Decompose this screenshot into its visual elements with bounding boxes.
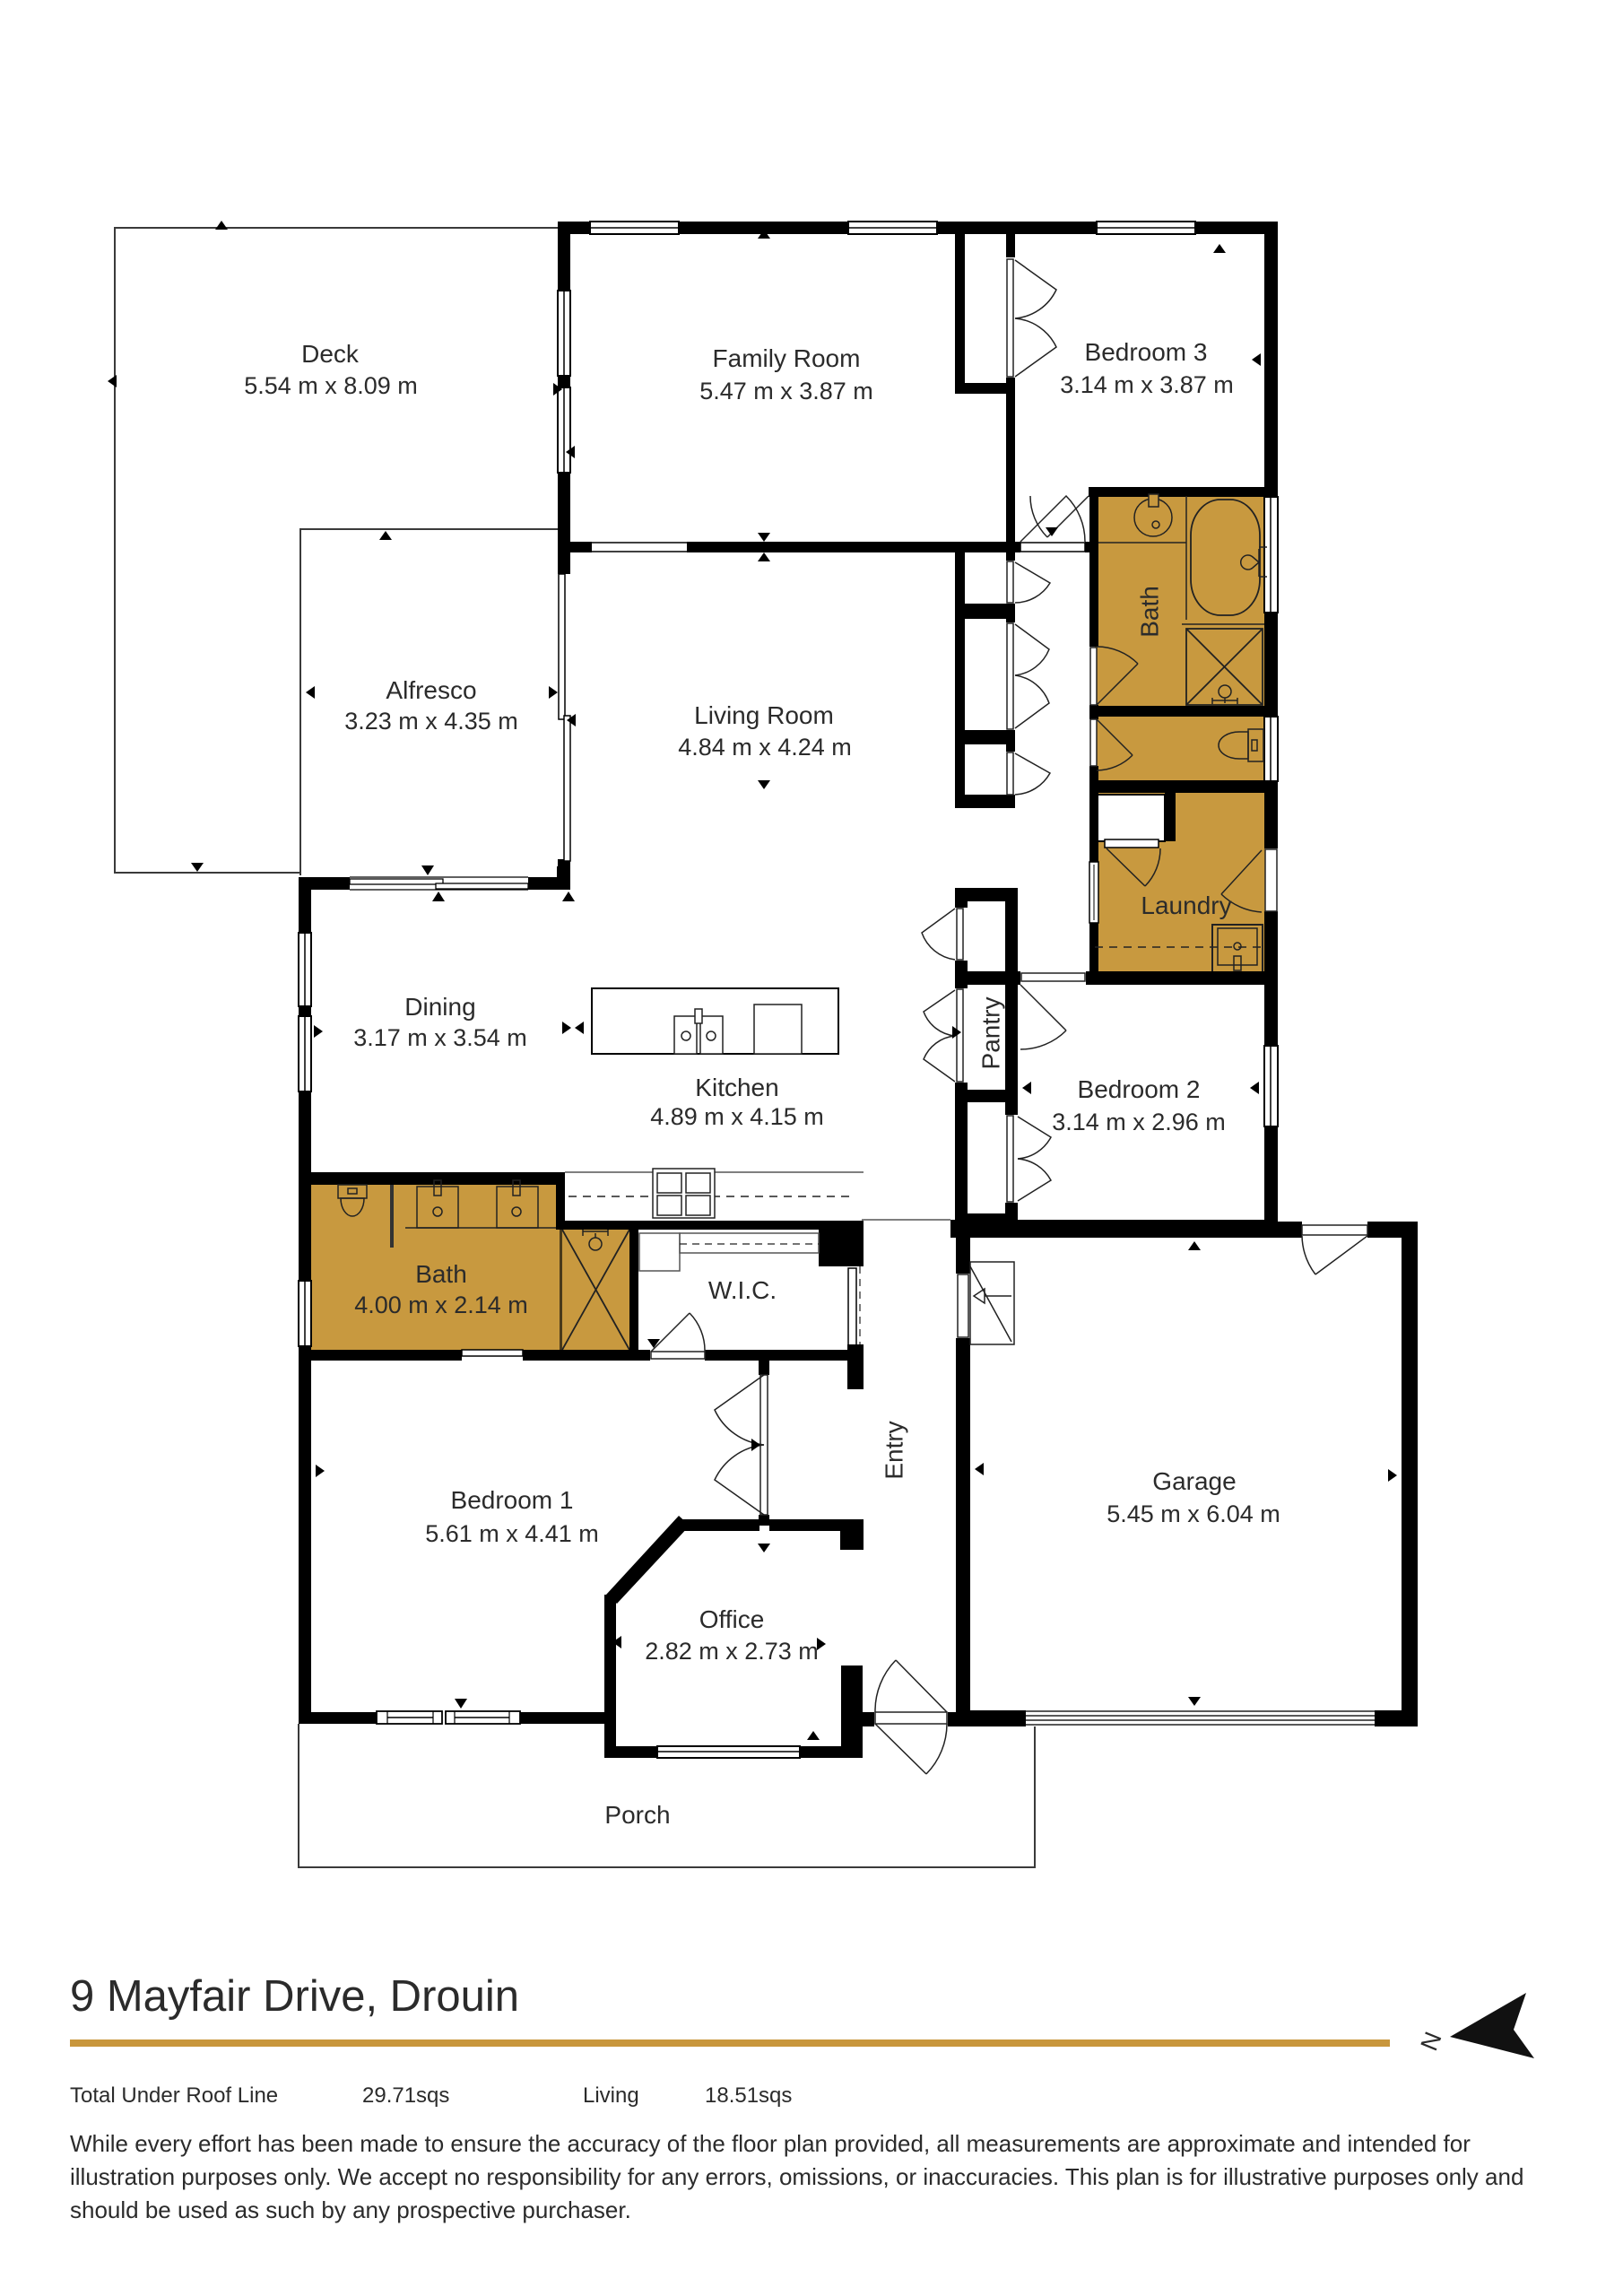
svg-text:3.14 m x 2.96 m: 3.14 m x 2.96 m	[1052, 1109, 1226, 1135]
svg-text:3.23 m x 4.35 m: 3.23 m x 4.35 m	[344, 708, 518, 735]
svg-text:Kitchen: Kitchen	[695, 1074, 778, 1101]
svg-text:5.45 m x 6.04 m: 5.45 m x 6.04 m	[1107, 1500, 1280, 1527]
svg-text:Bath: Bath	[415, 1260, 467, 1288]
svg-text:Bath: Bath	[1135, 586, 1163, 638]
svg-text:Garage: Garage	[1152, 1467, 1236, 1495]
svg-text:Alfresco: Alfresco	[386, 676, 476, 704]
svg-text:2.82 m x 2.73 m: 2.82 m x 2.73 m	[645, 1638, 819, 1665]
svg-text:Living: Living	[583, 2083, 639, 2108]
svg-text:18.51sqs: 18.51sqs	[705, 2083, 792, 2108]
svg-text:illustration purposes only. We: illustration purposes only. We accept no…	[70, 2163, 1523, 2190]
svg-text:4.89 m x 4.15 m: 4.89 m x 4.15 m	[650, 1103, 824, 1130]
svg-text:5.47 m x 3.87 m: 5.47 m x 3.87 m	[699, 378, 873, 404]
svg-text:4.84 m x 4.24 m: 4.84 m x 4.24 m	[678, 734, 852, 761]
svg-text:9 Mayfair Drive, Drouin: 9 Mayfair Drive, Drouin	[70, 1972, 519, 2021]
svg-text:Bedroom 2: Bedroom 2	[1078, 1075, 1201, 1103]
svg-text:Laundry: Laundry	[1141, 891, 1231, 919]
svg-text:Deck: Deck	[301, 340, 360, 368]
svg-text:While every effort has been ma: While every effort has been made to ensu…	[70, 2130, 1471, 2157]
svg-text:3.17 m x 3.54 m: 3.17 m x 3.54 m	[353, 1024, 527, 1051]
svg-text:5.54 m x 8.09 m: 5.54 m x 8.09 m	[244, 372, 418, 399]
svg-text:Office: Office	[699, 1605, 765, 1633]
svg-text:W.I.C.: W.I.C.	[708, 1276, 777, 1304]
svg-text:Living Room: Living Room	[694, 701, 834, 729]
svg-text:should be used as such by any: should be used as such by any prospectiv…	[70, 2196, 631, 2223]
svg-text:Porch: Porch	[604, 1801, 670, 1829]
svg-text:Family Room: Family Room	[713, 344, 861, 372]
svg-text:4.00 m x 2.14 m: 4.00 m x 2.14 m	[354, 1291, 528, 1318]
svg-text:Total Under Roof Line: Total Under Roof Line	[70, 2083, 278, 2108]
svg-text:Bedroom 1: Bedroom 1	[451, 1486, 574, 1514]
svg-text:Dining: Dining	[404, 993, 475, 1021]
svg-text:3.14 m x 3.87 m: 3.14 m x 3.87 m	[1060, 371, 1234, 398]
svg-text:Pantry: Pantry	[976, 997, 1004, 1070]
svg-text:Bedroom 3: Bedroom 3	[1085, 338, 1208, 366]
svg-text:Entry: Entry	[880, 1421, 907, 1479]
svg-text:5.61 m x 4.41 m: 5.61 m x 4.41 m	[425, 1520, 599, 1547]
svg-text:29.71sqs: 29.71sqs	[362, 2083, 449, 2108]
